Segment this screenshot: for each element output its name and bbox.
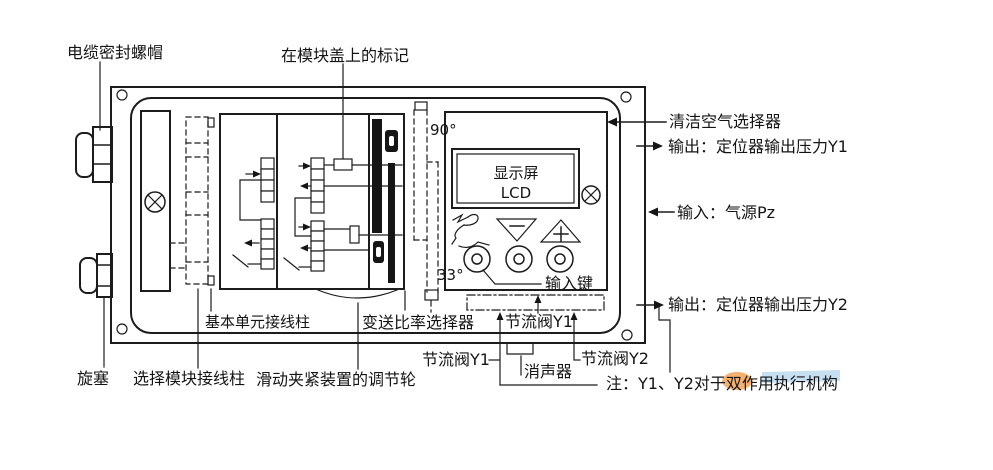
label-clean-air-selector: 清洁空气选择器 bbox=[669, 112, 781, 131]
terminal-compartment bbox=[141, 111, 214, 291]
label-output-y2: 输出：定位器输出压力Y2 bbox=[668, 295, 848, 314]
minus-key-icon[interactable] bbox=[497, 219, 536, 241]
gland-cap bbox=[76, 133, 93, 177]
terminal-stack-d bbox=[311, 221, 324, 271]
module-area bbox=[220, 114, 404, 298]
label-angle-33: 33° bbox=[437, 266, 464, 284]
label-input-pz: 输入：气源Pz bbox=[677, 203, 775, 222]
label-base-unit-terminals: 基本单元接线柱 bbox=[205, 313, 310, 331]
hand-icon bbox=[452, 215, 489, 248]
connector-bars bbox=[372, 119, 398, 283]
cable-gland bbox=[76, 127, 112, 182]
arrow-right-icon bbox=[637, 142, 663, 151]
label-throttle-y2: 节流阀Y2 bbox=[581, 349, 649, 368]
arrow-right-icon bbox=[246, 171, 261, 178]
arrow-left-icon bbox=[607, 118, 666, 127]
leader-lines bbox=[100, 62, 541, 369]
label-note: 注：Y1、Y2对于双作用执行机构 bbox=[606, 374, 838, 393]
module-cover-marking bbox=[334, 159, 352, 170]
plus-key-icon[interactable] bbox=[541, 220, 580, 242]
screw-x-icon bbox=[582, 186, 600, 204]
arrow-left-icon bbox=[244, 240, 259, 247]
screw-hole-icon bbox=[117, 90, 127, 100]
note-connector-line bbox=[659, 307, 670, 372]
label-module-cover-mark: 在模块盖上的标记 bbox=[281, 46, 409, 65]
push-button[interactable] bbox=[547, 246, 573, 272]
plug-body bbox=[97, 254, 112, 297]
arrow-up-icon bbox=[497, 312, 504, 385]
drain-plug bbox=[80, 254, 112, 297]
label-plug: 旋塞 bbox=[77, 369, 109, 388]
terminal-stack-c bbox=[311, 158, 324, 213]
gland-body bbox=[93, 127, 112, 182]
arrow-right-icon bbox=[637, 301, 664, 310]
screw-hole-icon bbox=[622, 330, 632, 340]
plug-cap bbox=[80, 258, 97, 293]
label-display-type: LCD bbox=[501, 184, 531, 202]
positioner-diagram: 电缆密封螺帽 在模块盖上的标记 90° 33° 显示屏 LCD 清洁空气选择器 … bbox=[0, 0, 993, 470]
base-unit-terminal-strip bbox=[170, 117, 214, 285]
label-option-module-terminals: 选择模块接线柱 bbox=[133, 369, 245, 388]
component-block bbox=[350, 226, 359, 243]
label-ratio-selector: 变送比率选择器 bbox=[362, 313, 474, 332]
label-muffler: 消声器 bbox=[524, 362, 572, 381]
port-arrows bbox=[607, 118, 674, 373]
clamp-wheel-arc bbox=[318, 290, 397, 298]
label-angle-90: 90° bbox=[430, 121, 457, 139]
muffler-port bbox=[507, 343, 533, 354]
label-input-keys: 输入键 bbox=[545, 274, 593, 293]
push-button[interactable] bbox=[506, 246, 532, 272]
terminal-stack-a bbox=[261, 158, 274, 202]
terminal-stack-b bbox=[261, 219, 274, 269]
label-clamp-wheel: 滑动夹紧装置的调节轮 bbox=[256, 370, 416, 389]
arrow-right-icon bbox=[299, 163, 311, 170]
label-output-y1: 输出：定位器输出压力Y1 bbox=[668, 137, 848, 156]
arrow-left-icon bbox=[648, 208, 674, 217]
label-display-name: 显示屏 bbox=[493, 164, 538, 182]
screw-hole-icon bbox=[621, 92, 631, 102]
diagram-canvas: 电缆密封螺帽 在模块盖上的标记 90° 33° 显示屏 LCD 清洁空气选择器 … bbox=[0, 0, 993, 470]
label-throttle-y1-panel: 节流阀Y1 bbox=[505, 312, 573, 331]
arrow-left-icon bbox=[300, 183, 311, 190]
arrow-left-icon bbox=[300, 245, 311, 252]
label-throttle-y1-left: 节流阀Y1 bbox=[422, 350, 490, 369]
arrow-right-icon bbox=[299, 224, 311, 231]
label-cable-gland: 电缆密封螺帽 bbox=[67, 43, 163, 62]
screw-hole-icon bbox=[117, 324, 127, 334]
screw-x-icon bbox=[145, 192, 165, 212]
push-button[interactable] bbox=[464, 246, 490, 272]
